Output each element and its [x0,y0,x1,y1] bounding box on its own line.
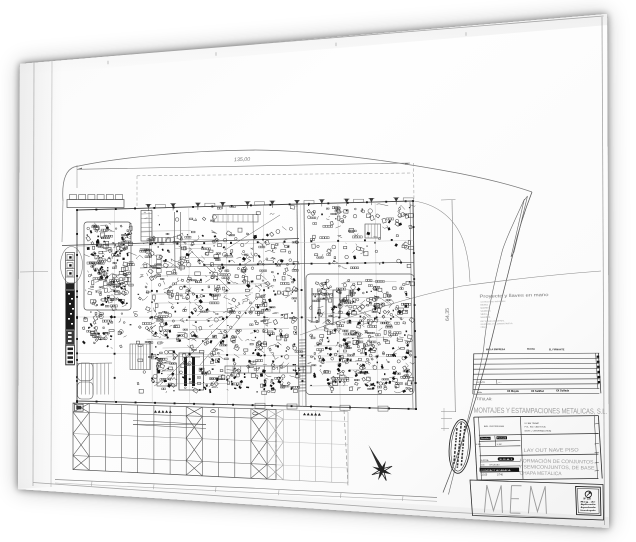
svg-text:Aplicada: Aplicada [581,503,597,506]
svg-text:TITULAR:: TITULAR: [476,397,492,401]
svg-text:N.ØTRA: N.ØTRA [481,459,489,462]
svg-text:Fecha/d: Fecha/d [497,438,506,440]
svg-text:1:100: 1:100 [481,475,487,477]
svg-text:1/746: 1/746 [497,474,503,476]
svg-text:MA LA EMPRESA: MA LA EMPRESA [486,348,505,351]
svg-text:Reg. de: Reg. de [581,501,598,503]
svg-text:Aprobada: Aprobada [581,506,597,509]
svg-text:EL FIRMANTE: EL FIRMANTE [549,348,565,351]
svg-text:POL. IND. CAN ROCA: POL. IND. CAN ROCA [525,426,547,429]
svg-text:CHCAL/ALI: CHCAL/ALI [489,463,500,466]
svg-text:Item: Item [481,464,485,467]
svg-text:MONTAJES Y ESTAMPACIONES METAL: MONTAJES Y ESTAMPACIONES METALICAS, S.L. [474,406,608,416]
svg-text:U.NO: U.NO [476,444,482,446]
svg-text:Nº 128: Nº 128 [584,498,592,501]
svg-text:NAVARRA: NAVARRA [480,316,490,319]
svg-text:XX Mayda: XX Mayda [507,390,519,393]
svg-text:UC AM TINNAT: UC AM TINNAT [525,422,540,425]
svg-text:XX Sulfada: XX Sulfada [556,390,570,393]
svg-text:COMPACT ACABADA: COMPACT ACABADA [481,469,512,472]
svg-text:E.B.A.1: E.B.A.1 [500,458,514,461]
svg-text:--- -: --- - [498,382,502,384]
svg-text:OBRAS: OBRAS [480,326,487,329]
svg-text:XX SelMod: XX SelMod [531,390,544,393]
svg-text:VALENCIA: VALENCIA [480,310,491,313]
svg-text:135,00: 135,00 [234,157,250,163]
svg-text:ZONA AUDIT: ZONA AUDIT [159,369,174,373]
svg-text:SEVILLA: SEVILLA [480,313,489,316]
svg-text:GL/T-/TR: GL/T-/TR [476,382,485,384]
svg-text:FECHA: FECHA [527,348,535,351]
svg-text:BILBAO: BILBAO [480,303,488,306]
svg-text:LAY OUT NAVE PISO: LAY OUT NAVE PISO [524,448,579,454]
svg-text:CHAPA METÁLICA: CHAPA METÁLICA [519,470,562,478]
svg-text:Tabla: Tabla [477,392,483,394]
svg-text:Homologada: Homologada [581,510,597,512]
svg-text:U.NC: U.NC [497,444,503,446]
svg-text:64,35: 64,35 [445,308,451,321]
svg-text:Nombre: Nombre [481,438,491,440]
svg-text:AVE. CENTRIFUGAS: AVE. CENTRIFUGAS [484,425,505,428]
svg-text:08293 + CERVERA(LLEIDA): 08293 + CERVERA(LLEIDA) [525,429,552,432]
svg-text:MADRID: MADRID [480,306,489,309]
